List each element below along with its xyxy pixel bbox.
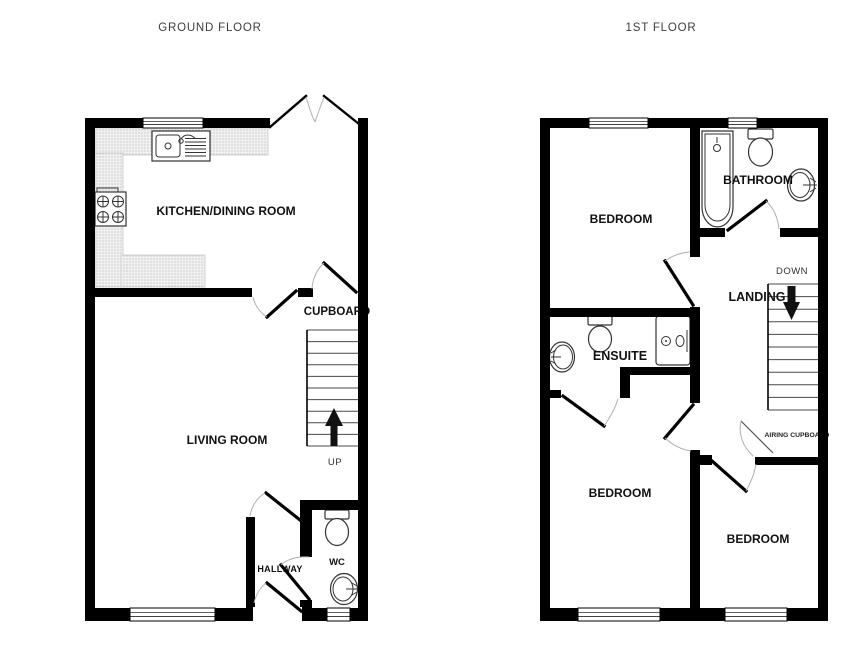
- window: [143, 118, 203, 128]
- up-label: UP: [328, 457, 342, 468]
- stairs-up: [307, 330, 358, 446]
- window: [327, 608, 350, 621]
- basin-icon: [331, 574, 358, 605]
- bedroom-rear-left-door: [665, 405, 693, 451]
- bedroom-rear-left-label: BEDROOM: [589, 486, 652, 500]
- ensuite-door: [563, 396, 618, 426]
- bedroom-rear-right-label: BEDROOM: [727, 532, 790, 546]
- bedroom-front-label: BEDROOM: [590, 212, 653, 226]
- toilet-icon: [325, 510, 349, 546]
- worktop-return: [121, 255, 205, 287]
- ground-walls: [85, 118, 368, 621]
- window: [589, 118, 648, 128]
- window: [578, 608, 660, 621]
- first-floor-title: 1ST FLOOR: [626, 22, 697, 34]
- bathroom-door: [728, 201, 779, 230]
- ground-floor-title: GROUND FLOOR: [158, 22, 262, 34]
- ground-fixtures: [95, 131, 358, 605]
- living-room-label: LIVING ROOM: [187, 433, 268, 447]
- down-arrow-icon: [783, 286, 800, 320]
- up-arrow-icon: [325, 408, 343, 446]
- first-floor-plan: 1ST FLOOR BEDROOM BATHROOM ENSUITE LANDI…: [540, 22, 830, 621]
- hob-icon: [95, 188, 126, 226]
- ground-windows: [130, 118, 350, 621]
- landing-label: LANDING: [729, 290, 786, 304]
- window: [728, 118, 757, 128]
- shower-icon: [656, 316, 690, 365]
- hallway-door: [250, 493, 300, 520]
- kitchen-dining-label: KITCHEN/DINING ROOM: [156, 204, 295, 218]
- ground-floor-plan: GROUND FLOOR KITCHEN/DINING ROOM LIVING …: [85, 22, 370, 622]
- floorplan-drawing: GROUND FLOOR KITCHEN/DINING ROOM LIVING …: [0, 0, 843, 654]
- front-door: [254, 583, 301, 611]
- toilet-icon: [748, 129, 773, 166]
- floorplan-page: GROUND FLOOR KITCHEN/DINING ROOM LIVING …: [0, 0, 843, 654]
- ensuite-label: ENSUITE: [593, 349, 647, 363]
- bathroom-label: BATHROOM: [723, 173, 793, 187]
- down-label: DOWN: [776, 266, 808, 277]
- window: [725, 608, 787, 621]
- bedroom-front-door: [665, 252, 693, 305]
- kitchen-sink-icon: [152, 131, 210, 161]
- toilet-icon: [588, 316, 612, 352]
- window: [130, 608, 215, 621]
- bedroom-rear-right-door: [712, 461, 756, 491]
- first-fixtures: [550, 129, 818, 372]
- basin-icon: [550, 342, 575, 372]
- wc-label: WC: [329, 557, 345, 568]
- cupboard-door: [312, 263, 356, 292]
